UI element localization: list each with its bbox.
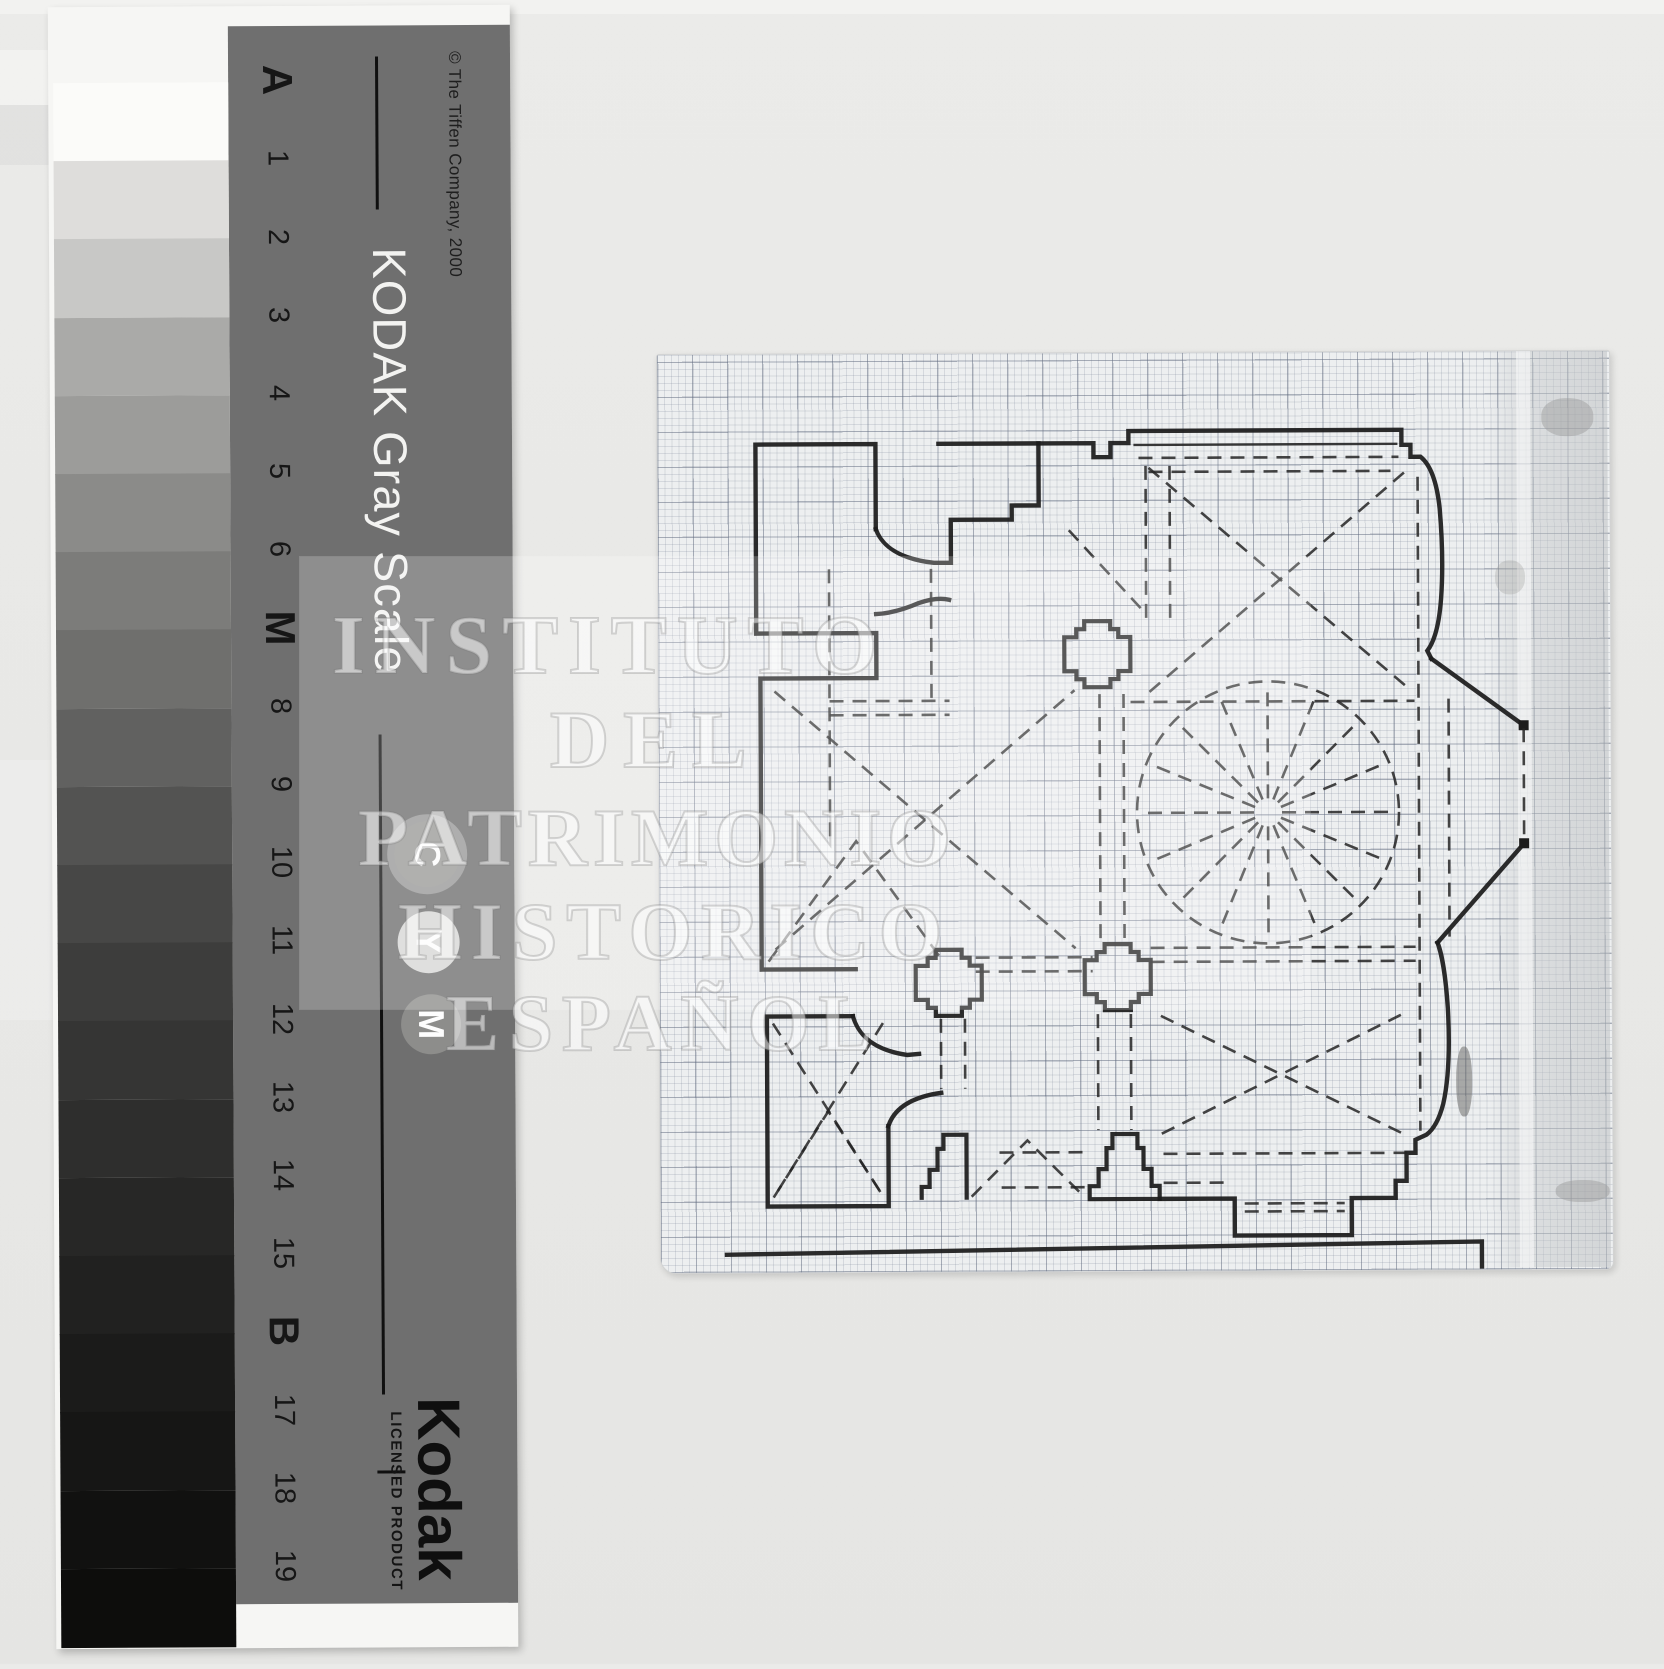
archival-scan-page: { "scan": { "background_color": "#e8e8e6…	[0, 0, 1664, 1664]
gray-patch-6	[56, 551, 231, 631]
plan-dash	[1164, 1153, 1410, 1154]
plan-dash	[1418, 477, 1421, 1131]
gray-patch-17	[60, 1412, 235, 1492]
patch-label-2: 2	[261, 219, 295, 253]
watermark-band: INSTITUTO DEL PATRIMONIO HISTORICO ESPAÑ…	[300, 557, 1310, 1009]
gray-patch-13	[58, 1099, 233, 1179]
plan-dash	[1161, 1015, 1402, 1134]
gray-patch-2	[54, 239, 229, 319]
patch-label-15: 15	[266, 1236, 300, 1270]
plan-dash	[1131, 1014, 1132, 1130]
watermark-line-3: PATRIMONIO	[358, 791, 957, 885]
copyright-text: © The Tiffen Company, 2000	[444, 51, 465, 277]
patch-label-column: A123456M89101112131415B171819	[0, 0, 556, 1]
patch-label-13: 13	[265, 1080, 299, 1114]
plan-wall-north-inner	[1133, 444, 1397, 445]
patch-label-B: B	[261, 1308, 307, 1354]
plan-dash	[1098, 1014, 1099, 1130]
patch-label-18: 18	[267, 1471, 301, 1505]
gray-patch-10	[57, 864, 232, 944]
gray-patch-9	[57, 786, 232, 866]
gray-patch-3	[54, 317, 229, 397]
gray-patch-4	[55, 395, 230, 475]
gray-patch-B	[60, 1333, 235, 1413]
plan-wall-east-diagonal-upper	[1431, 658, 1523, 725]
gray-patch-5	[55, 473, 230, 553]
patch-label-M: M	[257, 604, 303, 650]
patch-label-10: 10	[264, 845, 298, 879]
patch-label-17: 17	[267, 1392, 301, 1426]
patch-label-9: 9	[264, 767, 298, 801]
patch-label-6: 6	[262, 532, 296, 566]
watermark-line-4: HISTORICO	[398, 885, 951, 979]
gray-patch-1	[54, 160, 229, 240]
gray-patch-M	[56, 630, 231, 710]
plan-dash	[773, 1111, 883, 1197]
patch-label-19: 19	[268, 1549, 302, 1583]
gray-patch-12	[58, 1021, 233, 1101]
patch-label-12: 12	[265, 1001, 299, 1035]
kodak-licensed-text: LICENSED PRODUCT	[387, 1411, 405, 1591]
gray-patch-11	[58, 942, 233, 1022]
watermark-line-1: INSTITUTO	[332, 597, 887, 694]
gray-patch-15	[59, 1255, 234, 1335]
plan-wall-sw-funnel-lower	[888, 1093, 941, 1126]
watermark-line-5: ESPAÑOL	[446, 979, 881, 1070]
gray-patch-8	[56, 708, 231, 788]
plan-dash	[1138, 457, 1398, 458]
gray-patch-A	[53, 82, 228, 162]
plan-dash	[1149, 471, 1391, 472]
patch-label-4: 4	[262, 376, 296, 410]
kodak-logo: Kodak	[404, 1397, 474, 1581]
patch-label-14: 14	[266, 1158, 300, 1192]
watermark-line-2: DEL	[550, 693, 761, 787]
patch-label-3: 3	[261, 298, 295, 332]
gray-patch-19	[61, 1568, 236, 1648]
gray-patch-18	[61, 1490, 236, 1570]
patch-label-1: 1	[260, 141, 294, 175]
patch-label-A: A	[254, 57, 300, 103]
patch-label-11: 11	[265, 923, 299, 957]
plan-node-dot	[1519, 838, 1529, 848]
plan-facade-baseline	[727, 1241, 1482, 1269]
plan-dash	[1161, 1015, 1402, 1134]
plan-facade-pier	[1089, 1134, 1159, 1199]
plan-facade-half-pier	[921, 1135, 966, 1200]
patch-label-8: 8	[263, 689, 297, 723]
plan-dash	[1449, 699, 1450, 937]
gray-patch-14	[59, 1177, 234, 1257]
patch-label-5: 5	[262, 454, 296, 488]
